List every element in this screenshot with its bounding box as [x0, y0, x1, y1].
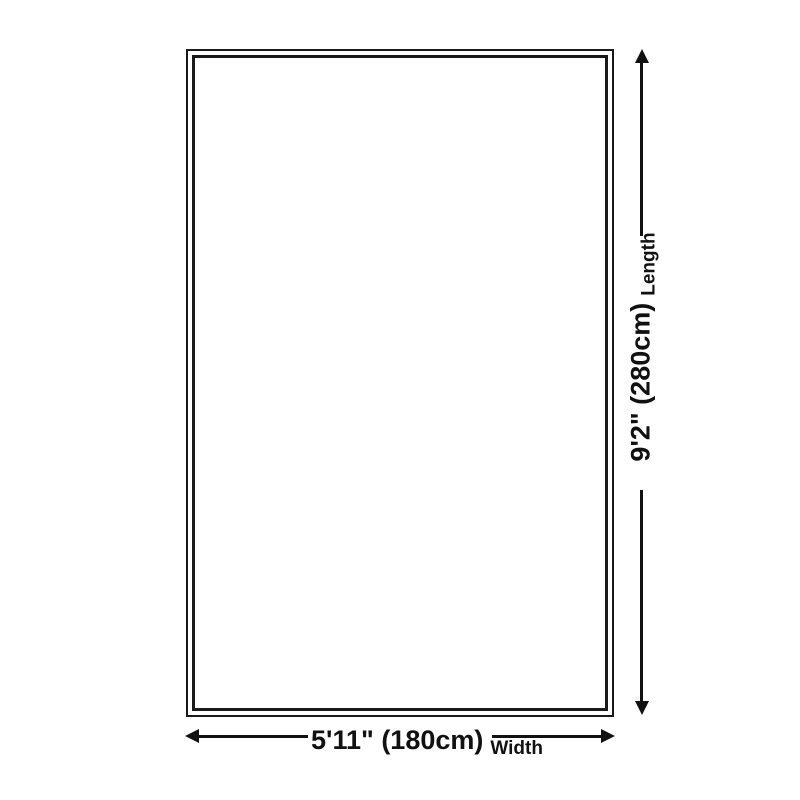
length-dimension-label: 9'2" (280cm) Length: [628, 232, 655, 461]
width-value: 5'11" (180cm): [311, 727, 483, 754]
rug-inner-outline: [192, 55, 608, 711]
length-value: 9'2" (280cm): [628, 303, 655, 462]
width-axis-label: Width: [490, 739, 543, 758]
length-axis-label: Length: [640, 232, 659, 295]
width-dimension-label: 5'11" (180cm) Width: [213, 727, 641, 754]
rug-outline: [186, 49, 614, 717]
length-arrow-line-top: [640, 61, 643, 236]
arrow-down-icon: [635, 701, 649, 715]
length-arrow-line-bottom: [640, 490, 643, 703]
rug-size-diagram: 9'2" (280cm) Length 5'11" (180cm) Width: [0, 0, 800, 800]
arrow-left-icon: [185, 729, 199, 743]
